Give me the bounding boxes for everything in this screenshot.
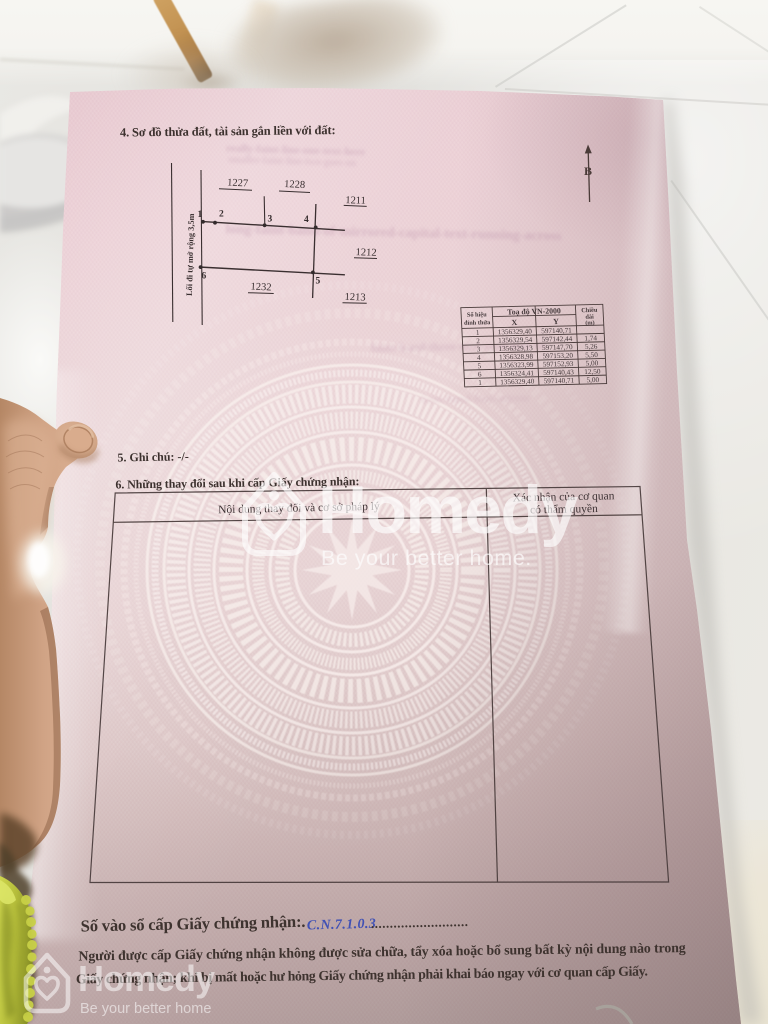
svg-text:1356329,13: 1356329,13 [498, 344, 533, 353]
svg-text:2: 2 [219, 210, 224, 220]
svg-text:3: 3 [268, 215, 273, 225]
svg-text:Homedy: Homedy [78, 958, 215, 999]
svg-text:1232: 1232 [250, 281, 272, 293]
svg-text:5,50: 5,50 [585, 351, 598, 359]
svg-text:5,26: 5,26 [585, 343, 598, 351]
svg-text:12,50: 12,50 [584, 368, 601, 376]
svg-text:1: 1 [478, 379, 482, 387]
svg-text:6: 6 [478, 370, 482, 378]
svg-text:Số vào sổ cấp Giấy chứng nhận:: Số vào sổ cấp Giấy chứng nhận:. [80, 912, 305, 936]
svg-text:Be your better home: Be your better home [80, 1001, 211, 1017]
svg-text:1227: 1227 [227, 177, 249, 189]
svg-text:5. Ghi chú: -/-: 5. Ghi chú: -/- [117, 449, 189, 464]
svg-text:1: 1 [476, 329, 480, 337]
svg-text:6: 6 [202, 272, 207, 282]
svg-text:Số hiệu: Số hiệu [467, 311, 488, 318]
svg-text:C.N.7.1.0.3: C.N.7.1.0.3 [307, 917, 377, 934]
svg-text:1356329,40: 1356329,40 [498, 327, 533, 336]
svg-text:Homedy: Homedy [318, 472, 578, 548]
svg-text:..........................: .......................... [371, 914, 469, 931]
svg-text:4. Sơ đồ thửa đất, tài sản gắn: 4. Sơ đồ thửa đất, tài sản gắn liền với … [120, 123, 336, 139]
svg-text:2: 2 [476, 337, 480, 345]
svg-text:Be your better home.: Be your better home. [321, 546, 532, 570]
svg-text:1356329,40: 1356329,40 [500, 378, 535, 387]
svg-text:Toạ độ VN-2000: Toạ độ VN-2000 [507, 306, 561, 316]
svg-text:5: 5 [316, 277, 321, 287]
svg-text:(m): (m) [585, 320, 595, 327]
svg-text:5: 5 [477, 362, 481, 370]
svg-text:X: X [511, 318, 517, 327]
svg-text:5,00: 5,00 [585, 359, 598, 367]
svg-text:4: 4 [304, 215, 309, 225]
svg-text:5,00: 5,00 [586, 376, 599, 384]
svg-text:B: B [584, 164, 592, 178]
svg-text:1: 1 [198, 210, 203, 220]
svg-text:1213: 1213 [344, 292, 365, 304]
svg-text:đỉnh thửa: đỉnh thửa [464, 319, 491, 327]
svg-text:1,74: 1,74 [584, 334, 597, 342]
svg-text:1356323,99: 1356323,99 [499, 361, 534, 370]
svg-text:Lối đi tự mở rộng 3,5m: Lối đi tự mở rộng 3,5m [185, 213, 196, 296]
svg-text:Y: Y [553, 317, 559, 326]
svg-text:597140,71: 597140,71 [544, 377, 575, 386]
svg-text:1228: 1228 [284, 179, 306, 191]
svg-text:3: 3 [476, 345, 480, 353]
svg-text:597152,93: 597152,93 [543, 360, 574, 369]
svg-text:1212: 1212 [355, 247, 376, 259]
svg-text:4: 4 [477, 354, 481, 362]
svg-text:597147,70: 597147,70 [542, 343, 573, 352]
svg-text:597140,71: 597140,71 [541, 327, 572, 336]
